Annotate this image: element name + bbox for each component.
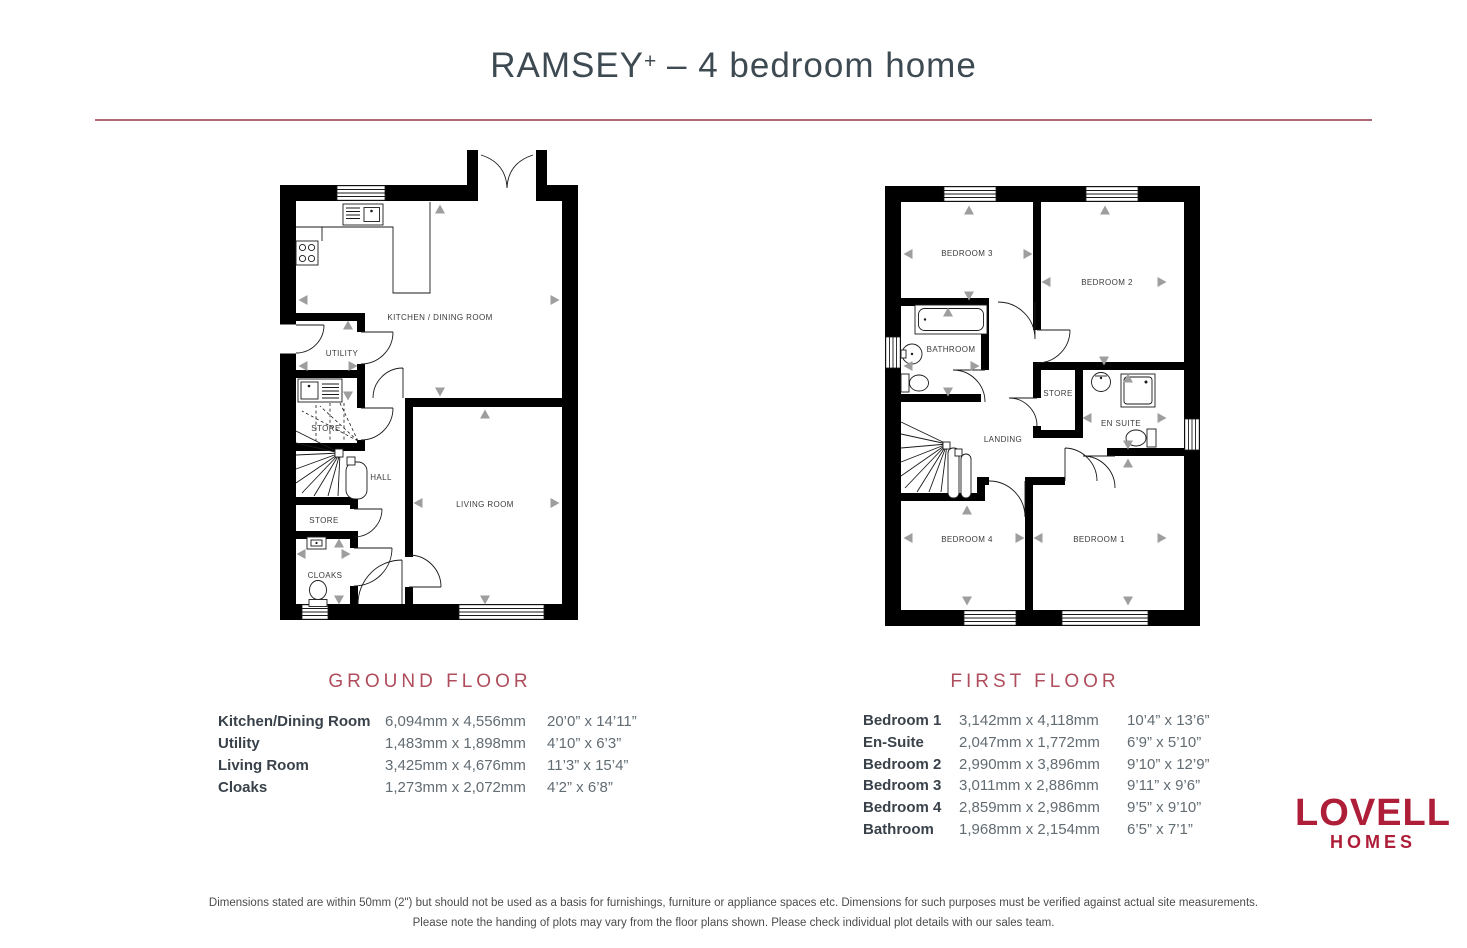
disclaimer-line-1: Dimensions stated are within 50mm (2") b… — [0, 897, 1467, 909]
page-title-suffix: – 4 bedroom home — [656, 46, 977, 85]
bath-icon — [915, 305, 987, 334]
room-metric: 1,968mm x 2,154mm — [959, 821, 1127, 838]
first-floor-plan: BEDROOM 3 BEDROOM 2 BATHROOM STORE LANDI… — [875, 176, 1210, 636]
room-metric: 6,094mm x 4,556mm — [385, 713, 547, 730]
ground-stairs — [296, 431, 367, 499]
room-name: En-Suite — [863, 734, 959, 751]
first-floor-heading: FIRST FLOOR — [835, 671, 1235, 693]
room-name: Bedroom 2 — [863, 756, 959, 773]
room-metric: 3,425mm x 4,676mm — [385, 757, 547, 774]
french-doors — [481, 155, 533, 188]
room-metric: 3,142mm x 4,118mm — [959, 712, 1127, 729]
room-imperial: 4’10” x 6’3” — [547, 735, 667, 752]
room-name: Cloaks — [218, 779, 385, 796]
room-label-bedroom2: BEDROOM 2 — [1081, 278, 1133, 287]
room-label-cloaks: CLOAKS — [308, 571, 343, 580]
page-title-plus: + — [644, 50, 656, 73]
ground-floor-heading: GROUND FLOOR — [230, 671, 630, 693]
logo-wordmark: LOVELL — [1288, 794, 1458, 832]
first-floor-dimension-table: Bedroom 1 3,142mm x 4,118mm 10’4” x 13’6… — [863, 710, 1267, 840]
bathroom-basin-icon — [901, 344, 922, 364]
ground-floor-plan: KITCHEN / DINING ROOM UTILITY STORE HALL… — [270, 145, 590, 630]
page-title: RAMSEY+ – 4 bedroom home — [0, 46, 1467, 86]
room-imperial: 10’4” x 13’6” — [1127, 712, 1267, 729]
toilet-icon — [309, 581, 327, 607]
room-imperial: 20’0” x 14’11” — [547, 713, 667, 730]
kitchen-sink-icon — [343, 204, 383, 225]
room-name: Bedroom 1 — [863, 712, 959, 729]
room-metric: 2,990mm x 3,896mm — [959, 756, 1127, 773]
bathroom-toilet-icon — [901, 374, 929, 392]
room-label-utility: UTILITY — [326, 349, 359, 358]
room-label-store-lower: STORE — [309, 516, 338, 525]
room-name: Living Room — [218, 757, 385, 774]
room-name: Bathroom — [863, 821, 959, 838]
room-imperial: 9’11” x 9’6” — [1127, 777, 1267, 794]
room-name: Utility — [218, 735, 385, 752]
page-title-name: RAMSEY — [490, 46, 644, 85]
room-metric: 3,011mm x 2,886mm — [959, 777, 1127, 794]
room-imperial: 11’3” x 15’4” — [547, 757, 667, 774]
disclaimer-line-2: Please note the handing of plots may var… — [0, 917, 1467, 929]
room-label-bedroom4: BEDROOM 4 — [941, 535, 993, 544]
room-imperial: 4’2” x 6’8” — [547, 779, 667, 796]
room-name: Kitchen/Dining Room — [218, 713, 385, 730]
room-imperial: 6’9” x 5’10” — [1127, 734, 1267, 751]
side-door-opening — [280, 325, 297, 354]
room-metric: 1,483mm x 1,898mm — [385, 735, 547, 752]
room-imperial: 9’10” x 12’9” — [1127, 756, 1267, 773]
room-label-store: STORE — [1043, 389, 1072, 398]
lovell-homes-logo: LOVELL HOMES — [1288, 794, 1458, 852]
room-label-bathroom: BATHROOM — [927, 345, 976, 354]
hob-icon — [296, 241, 318, 265]
utility-sink-icon — [298, 379, 342, 402]
ground-doors — [296, 325, 441, 604]
room-label-hall: HALL — [370, 473, 392, 482]
room-label-landing: LANDING — [984, 435, 1022, 444]
room-label-store-upper: STORE — [311, 424, 340, 433]
room-metric: 1,273mm x 2,072mm — [385, 779, 547, 796]
ensuite-basin-icon — [1092, 373, 1111, 392]
ground-floor-dimension-table: Kitchen/Dining Room 6,094mm x 4,556mm 20… — [218, 710, 667, 798]
header-divider-rule — [95, 119, 1372, 121]
cloaks-basin-icon — [307, 537, 326, 549]
room-name: Bedroom 3 — [863, 777, 959, 794]
room-imperial: 9’5” x 9’10” — [1127, 799, 1267, 816]
room-metric: 2,859mm x 2,986mm — [959, 799, 1127, 816]
first-stairs — [901, 422, 971, 498]
room-label-bedroom3: BEDROOM 3 — [941, 249, 993, 258]
room-label-ensuite: EN SUITE — [1101, 419, 1141, 428]
logo-subtitle: HOMES — [1288, 832, 1458, 852]
room-name: Bedroom 4 — [863, 799, 959, 816]
room-imperial: 6’5” x 7’1” — [1127, 821, 1267, 838]
understairs-store-dashes — [302, 403, 358, 441]
brochure-page: RAMSEY+ – 4 bedroom home — [0, 0, 1467, 948]
room-metric: 2,047mm x 1,772mm — [959, 734, 1127, 751]
room-label-kitchen: KITCHEN / DINING ROOM — [387, 313, 492, 322]
room-label-living: LIVING ROOM — [456, 500, 514, 509]
room-label-bedroom1: BEDROOM 1 — [1073, 535, 1125, 544]
